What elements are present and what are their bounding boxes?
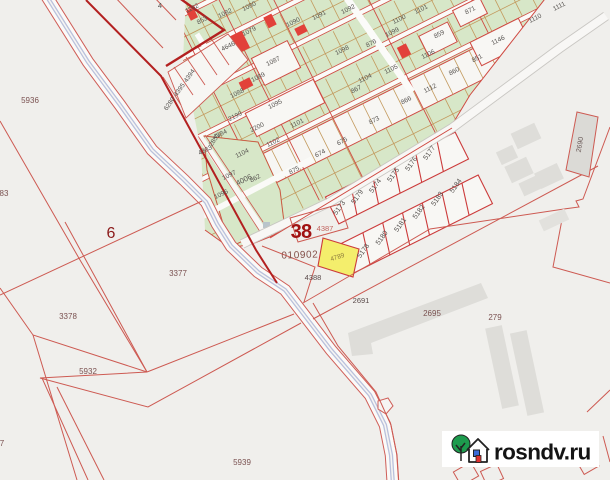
svg-text:4: 4 <box>158 1 162 10</box>
svg-text:279: 279 <box>488 313 502 322</box>
svg-text:4388: 4388 <box>305 273 322 282</box>
svg-text:83: 83 <box>0 189 9 198</box>
svg-text:5939: 5939 <box>233 458 251 467</box>
svg-text:38: 38 <box>291 221 312 243</box>
svg-text:010902: 010902 <box>281 249 318 261</box>
svg-text:2695: 2695 <box>423 309 441 318</box>
svg-text:2691: 2691 <box>353 296 370 305</box>
svg-text:4387: 4387 <box>317 224 334 233</box>
svg-text:3377: 3377 <box>169 269 187 278</box>
svg-text:5936: 5936 <box>21 96 39 105</box>
svg-text:6: 6 <box>107 225 116 242</box>
svg-text:7: 7 <box>0 439 5 448</box>
svg-text:3378: 3378 <box>59 312 77 321</box>
svg-text:rosndv.ru: rosndv.ru <box>494 440 591 465</box>
svg-text:5932: 5932 <box>79 367 97 376</box>
